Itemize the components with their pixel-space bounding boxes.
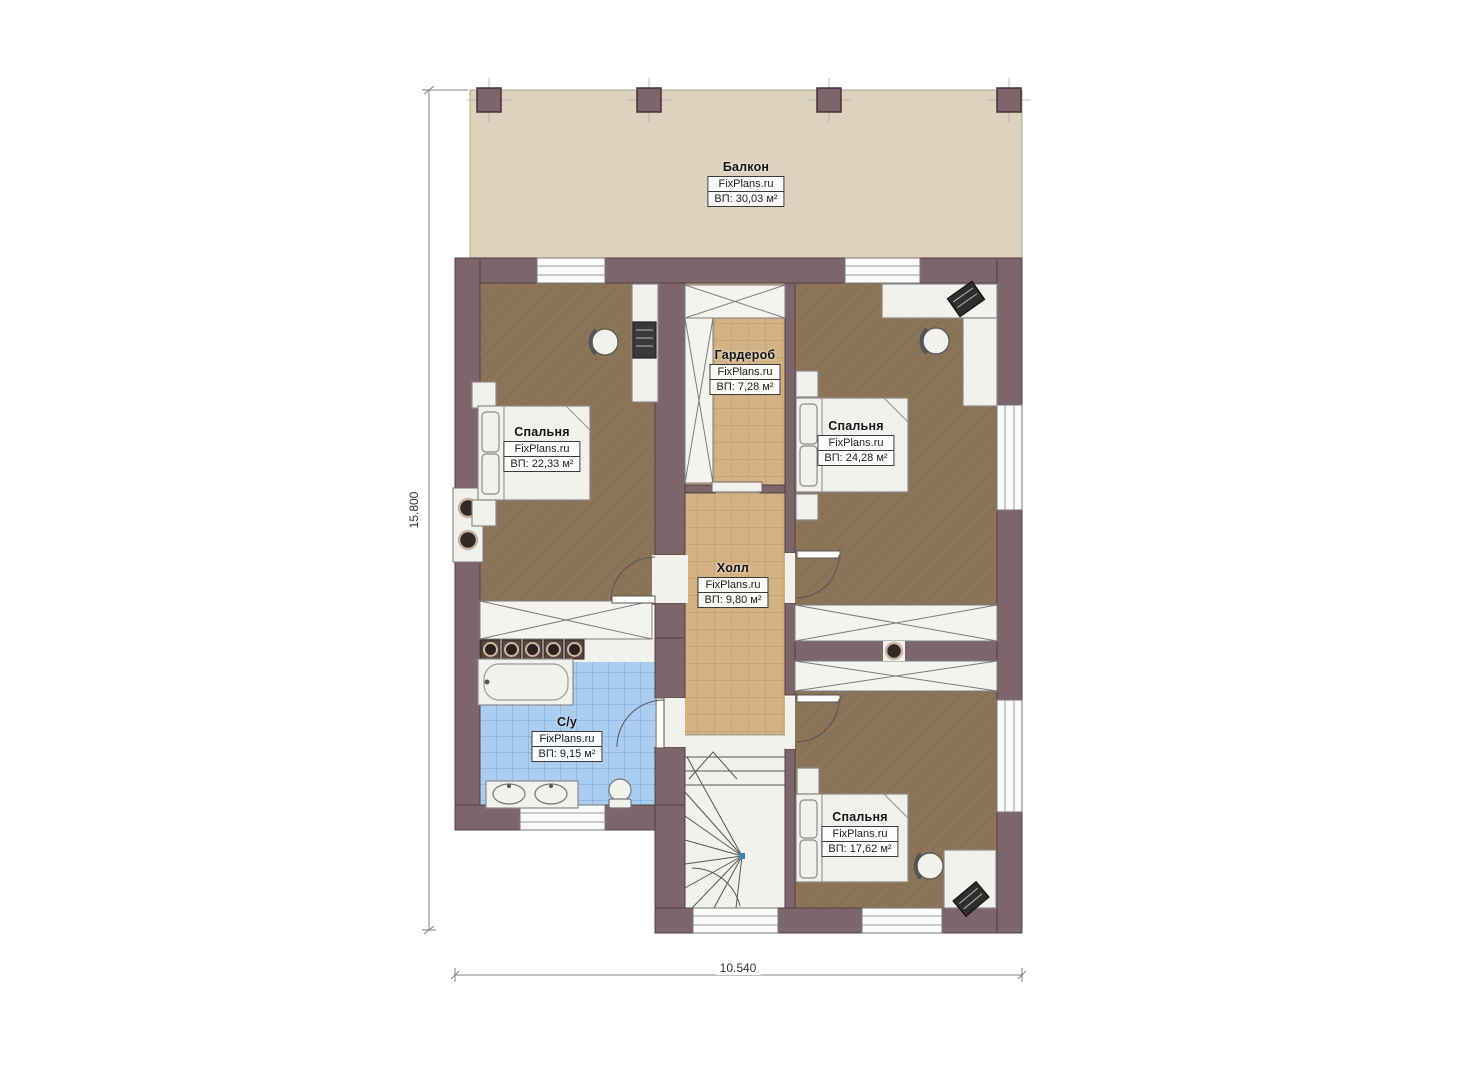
toilet-icon — [609, 779, 631, 808]
desk-icon — [632, 284, 658, 402]
dimension-height-label: 15.800 — [407, 488, 421, 533]
watermark-text: FixPlans.ru — [532, 732, 601, 747]
flue-row-icon — [481, 640, 584, 659]
wardrobe-cabinet-icon — [685, 285, 785, 318]
watermark-text: FixPlans.ru — [822, 827, 897, 842]
watermark-text: FixPlans.ru — [504, 442, 579, 457]
desk-icon — [944, 850, 996, 916]
room-info-box: FixPlans.ru ВП: 30,03 м² — [707, 176, 784, 207]
room-name: Спальня — [503, 425, 580, 439]
room-area-value: ВП: 17,62 м² — [822, 842, 897, 856]
window — [845, 258, 920, 283]
room-area-value: ВП: 7,28 м² — [710, 380, 779, 394]
room-info-box: FixPlans.ru ВП: 7,28 м² — [709, 364, 780, 395]
watermark-text: FixPlans.ru — [818, 436, 893, 451]
room-area-value: ВП: 9,80 м² — [698, 593, 767, 607]
watermark-text: FixPlans.ru — [708, 177, 783, 192]
room-label-bedroom-b: Спальня FixPlans.ru ВП: 17,62 м² — [821, 810, 898, 857]
room-info-box: FixPlans.ru ВП: 24,28 м² — [817, 435, 894, 466]
room-name: Спальня — [817, 419, 894, 433]
floor-plan-canvas: Балкон FixPlans.ru ВП: 30,03 м² Спальня … — [0, 0, 1474, 1080]
room-area-value: ВП: 30,03 м² — [708, 192, 783, 206]
window — [693, 908, 778, 933]
room-name: Холл — [697, 561, 768, 575]
bathtub-icon — [478, 659, 573, 705]
room-info-box: FixPlans.ru ВП: 22,33 м² — [503, 441, 580, 472]
room-info-box: FixPlans.ru ВП: 9,80 м² — [697, 577, 768, 608]
chair-icon — [922, 328, 949, 354]
door-wardrobe-slider — [712, 482, 762, 492]
room-label-balcony: Балкон FixPlans.ru ВП: 30,03 м² — [707, 160, 784, 207]
room-info-box: FixPlans.ru ВП: 9,15 м² — [531, 731, 602, 762]
room-info-box: FixPlans.ru ВП: 17,62 м² — [821, 826, 898, 857]
hall-floor — [685, 490, 785, 735]
room-name: Балкон — [707, 160, 784, 174]
chair-icon — [916, 853, 943, 879]
watermark-text: FixPlans.ru — [698, 578, 767, 593]
stairwell-floor — [685, 735, 785, 908]
room-name: С/у — [531, 715, 602, 729]
window — [520, 805, 605, 830]
closet-icon — [795, 605, 997, 641]
window — [997, 700, 1022, 812]
closet-icon — [795, 661, 997, 691]
room-label-bathroom: С/у FixPlans.ru ВП: 9,15 м² — [531, 715, 602, 762]
room-label-bedroom-tl: Спальня FixPlans.ru ВП: 22,33 м² — [503, 425, 580, 472]
watermark-text: FixPlans.ru — [710, 365, 779, 380]
sink-icon — [486, 781, 578, 808]
room-label-bedroom-tr: Спальня FixPlans.ru ВП: 24,28 м² — [817, 419, 894, 466]
closet-icon — [480, 601, 652, 639]
room-label-wardrobe: Гардероб FixPlans.ru ВП: 7,28 м² — [709, 348, 780, 395]
chair-icon — [591, 329, 618, 355]
wall-flue-icon — [883, 641, 905, 661]
room-area-value: ВП: 24,28 м² — [818, 451, 893, 465]
room-name: Спальня — [821, 810, 898, 824]
room-label-hall: Холл FixPlans.ru ВП: 9,80 м² — [697, 561, 768, 608]
window — [862, 908, 942, 933]
dimension-width-label: 10.540 — [716, 961, 761, 975]
window — [997, 405, 1022, 510]
room-area-value: ВП: 22,33 м² — [504, 457, 579, 471]
window — [537, 258, 605, 283]
room-area-value: ВП: 9,15 м² — [532, 747, 601, 761]
wardrobe-cabinet-icon — [685, 318, 713, 483]
room-name: Гардероб — [709, 348, 780, 362]
